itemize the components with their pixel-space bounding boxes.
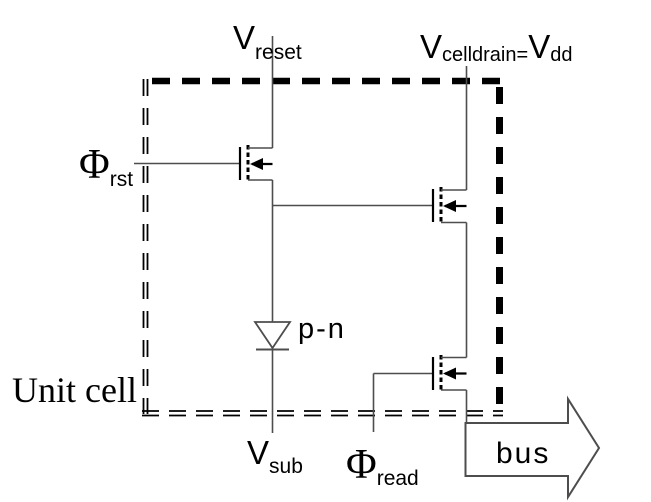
label-phi-read: Φread	[346, 444, 419, 489]
label-phi-rst-sub: rst	[110, 168, 133, 191]
label-v-sub-sub: sub	[269, 455, 303, 478]
label-v-reset-sub: reset	[255, 41, 302, 64]
photodiode	[255, 322, 290, 350]
label-phi-read-sub: read	[377, 467, 419, 490]
label-equals: =	[517, 44, 529, 66]
label-unit-cell: Unit cell	[12, 372, 137, 408]
label-phi-read-base: Φ	[346, 442, 377, 488]
label-v-celldrain-base: V	[420, 28, 442, 65]
label-v-sub-base: V	[247, 434, 269, 471]
label-v-celldrain: Vcelldrain=Vdd	[420, 30, 572, 65]
label-photodiode: p-n	[298, 315, 346, 344]
label-phi-rst: Φrst	[79, 144, 133, 190]
wires	[134, 36, 467, 433]
label-v-dd-sub: dd	[550, 44, 572, 66]
label-v-celldrain-sub: celldrain	[442, 44, 516, 66]
bulk-arrow-head-icon	[250, 158, 263, 170]
unit-cell-boundary	[142, 79, 503, 416]
unit-cell-circuit-diagram: Vreset Vcelldrain=Vdd Φrst p-n Unit cell…	[0, 0, 651, 502]
label-bus: bus	[496, 439, 550, 469]
circuit-linework	[0, 0, 651, 502]
bulk-arrow-head-icon	[443, 368, 456, 380]
bulk-arrow-head-icon	[443, 200, 456, 212]
label-v-dd-base: V	[528, 28, 550, 65]
reset-transistor	[240, 145, 273, 182]
diode-down-icon	[255, 322, 290, 348]
label-v-reset: Vreset	[233, 21, 302, 63]
read-select-transistor	[433, 355, 467, 392]
label-v-sub: Vsub	[247, 436, 303, 477]
label-v-reset-base: V	[233, 19, 255, 56]
source-follower-transistor	[433, 187, 467, 224]
label-phi-rst-base: Φ	[79, 142, 110, 188]
